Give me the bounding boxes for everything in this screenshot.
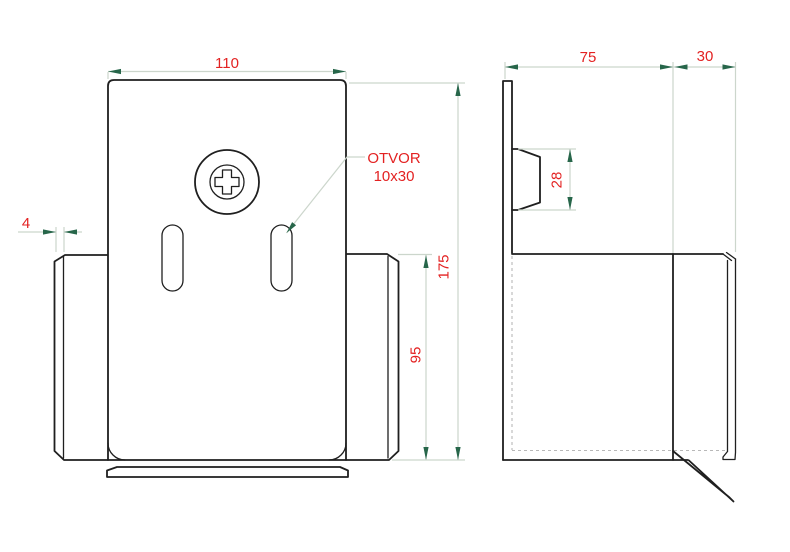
- dim-28-arrow-bottom: [567, 197, 572, 210]
- mounting-plate-outline: [108, 80, 346, 460]
- dim-30-label: 30: [697, 48, 714, 65]
- right-wing-outline: [346, 254, 399, 460]
- dim-30-arrow-left: [675, 64, 688, 69]
- dim-175-label: 175: [436, 254, 453, 279]
- dim-4-label: 4: [22, 215, 30, 232]
- left-wing-outline: [55, 255, 109, 460]
- dim-4-arrow-left: [43, 229, 56, 234]
- wing-front-chamfer-top: [723, 253, 736, 261]
- dim-110-arrow-left: [108, 69, 121, 74]
- dim-95-arrow-bottom: [423, 447, 428, 460]
- hole-callout-line2: 10x30: [374, 168, 415, 185]
- dim-175-arrow-top: [455, 83, 460, 96]
- dim-175-arrow-bottom: [455, 447, 460, 460]
- hole-callout-line1: OTVOR: [367, 150, 421, 167]
- side-view: [503, 81, 736, 502]
- dim-75-arrow-left: [505, 64, 518, 69]
- dim-95-label: 95: [408, 347, 425, 364]
- dim-28-arrow-top: [567, 149, 572, 162]
- dim-28-label: 28: [549, 172, 566, 189]
- dim-75-arrow-right: [660, 64, 673, 69]
- wall-plate-edge: [503, 81, 512, 460]
- front-flange-edge-bar: [723, 259, 736, 460]
- drawing-canvas: 110 4 95 175 OTVOR 10x30: [0, 0, 790, 552]
- dim-110-arrow-right: [333, 69, 346, 74]
- bent-tab-strip: [673, 451, 734, 502]
- dim-75-label: 75: [580, 49, 597, 66]
- side-dimensions: 75 30 28: [505, 48, 736, 253]
- technical-drawing: 110 4 95 175 OTVOR 10x30: [0, 0, 790, 552]
- dim-110-extension-lines: [108, 72, 346, 79]
- dim-30-arrow-right: [723, 64, 736, 69]
- dim-4-arrow-right: [64, 229, 77, 234]
- front-view: [55, 80, 399, 477]
- bottom-lip-strip: [107, 467, 348, 477]
- dim-28-extension-lines: [518, 149, 576, 210]
- pressed-tab-outline: [512, 149, 540, 210]
- dim-4-extension-lines: [56, 227, 64, 252]
- dim-110-label: 110: [215, 55, 239, 72]
- dim-95-arrow-top: [423, 255, 428, 268]
